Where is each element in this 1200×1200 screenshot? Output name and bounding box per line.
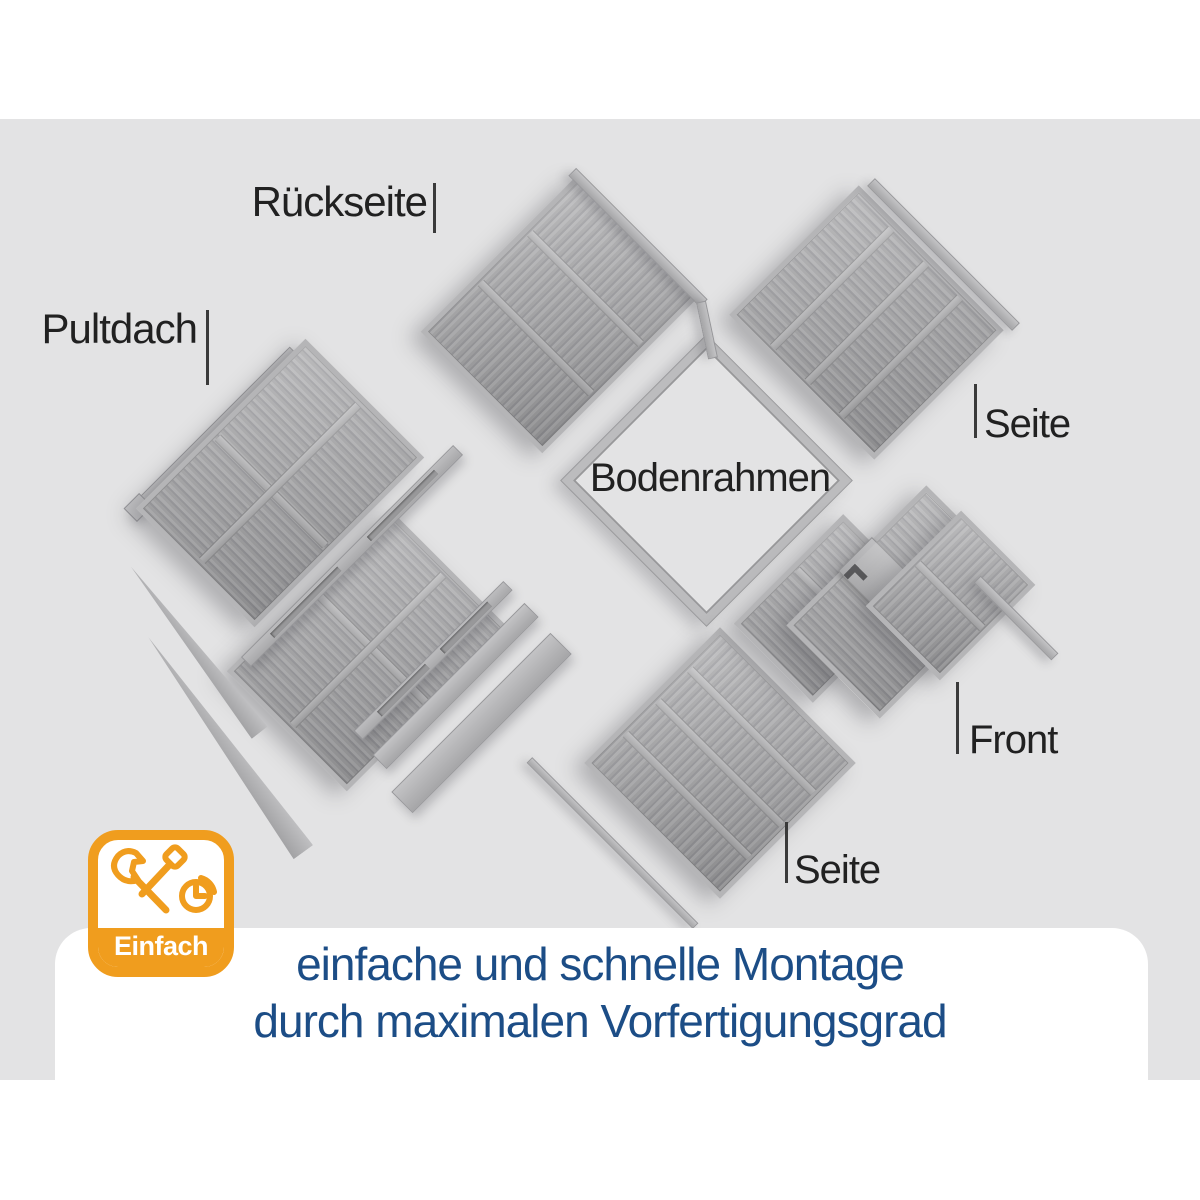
- badge-label: Einfach: [98, 928, 224, 967]
- panel-rail: [655, 698, 785, 828]
- panel-rail: [527, 230, 643, 346]
- shed-parts-diagram: RückseitePultdachSeiteBodenrahmenFrontSe…: [0, 0, 1200, 1200]
- label-rueckseite: Rückseite: [252, 181, 427, 223]
- tick-rueckseite: [433, 183, 436, 233]
- panel-seam: [804, 260, 928, 384]
- label-front: Front: [969, 720, 1057, 760]
- panel-seam: [199, 402, 362, 565]
- easy-assembly-badge: Einfach: [88, 830, 234, 977]
- label-pultdach: Pultdach: [42, 308, 197, 350]
- panel-rail: [478, 280, 594, 396]
- label-seite-unten: Seite: [794, 850, 880, 890]
- label-bodenrahmen: Bodenrahmen: [590, 458, 830, 498]
- tick-seite-rechts: [974, 384, 977, 438]
- tick-pultdach: [206, 310, 209, 385]
- panel-rail: [915, 560, 986, 631]
- tick-seite-unten: [785, 822, 788, 883]
- tick-front: [956, 682, 959, 754]
- caption-line-2: durch maximalen Vorfertigungsgrad: [0, 993, 1200, 1050]
- label-seite-rechts: Seite: [984, 404, 1070, 444]
- tools-and-clock-icon: [104, 844, 218, 928]
